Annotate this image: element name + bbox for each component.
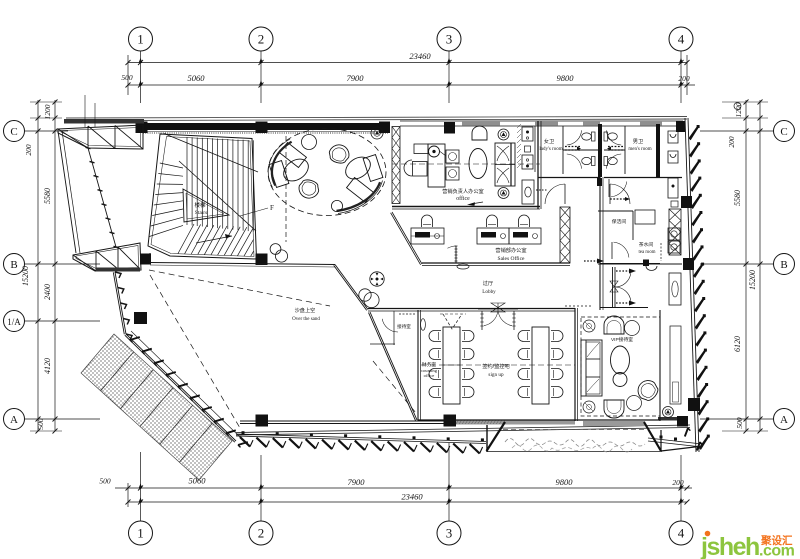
svg-text:F: F (270, 204, 274, 212)
svg-text:茶水间: 茶水间 (639, 241, 654, 248)
svg-text:4: 4 (678, 32, 685, 47)
svg-text:5580: 5580 (733, 190, 742, 206)
svg-text:2: 2 (258, 32, 265, 47)
svg-text:.com: .com (759, 543, 795, 559)
svg-text:Stairs: Stairs (195, 210, 208, 216)
svg-text:3: 3 (446, 526, 453, 541)
svg-text:沙盘上空: 沙盘上空 (295, 306, 316, 314)
svg-text:15200: 15200 (748, 270, 757, 290)
svg-text:签约/监控吧: 签约/监控吧 (482, 362, 510, 370)
svg-text:男卫: 男卫 (633, 138, 643, 145)
svg-text:保洁间: 保洁间 (612, 218, 627, 225)
svg-text:Sales Office: Sales Office (498, 255, 525, 262)
svg-text:2: 2 (258, 526, 265, 541)
svg-text:men's room: men's room (628, 147, 651, 152)
svg-text:3: 3 (446, 32, 453, 47)
svg-text:500: 500 (36, 418, 45, 430)
svg-text:6120: 6120 (733, 336, 742, 352)
svg-text:4120: 4120 (43, 358, 52, 374)
svg-text:9800: 9800 (556, 477, 574, 487)
svg-text:200: 200 (24, 144, 33, 156)
svg-text:7900: 7900 (347, 73, 365, 83)
svg-text:营销负责人办公室: 营销负责人办公室 (442, 187, 484, 195)
svg-text:200: 200 (727, 136, 736, 148)
svg-text:Lobby: Lobby (482, 289, 496, 295)
svg-text:B: B (10, 259, 17, 271)
svg-text:office: office (456, 195, 470, 202)
svg-text:23460: 23460 (409, 51, 431, 61)
svg-text:楼梯: 楼梯 (194, 201, 206, 209)
svg-text:1200: 1200 (43, 104, 52, 119)
svg-text:1/A: 1/A (7, 317, 21, 327)
svg-text:500: 500 (121, 73, 133, 82)
svg-text:接待室: 接待室 (397, 323, 411, 330)
svg-text:A: A (780, 414, 788, 426)
svg-text:200: 200 (672, 478, 684, 487)
svg-text:Over the sand: Over the sand (292, 317, 320, 322)
svg-text:sign up: sign up (488, 372, 504, 378)
svg-text:9800: 9800 (557, 73, 575, 83)
svg-text:500: 500 (99, 477, 111, 486)
svg-text:lady's room: lady's room (539, 147, 562, 152)
svg-text:tea room: tea room (639, 250, 656, 255)
svg-text:jsheh: jsheh (700, 533, 759, 559)
svg-text:7900: 7900 (348, 477, 366, 487)
svg-text:1: 1 (137, 526, 144, 541)
svg-text:过厅: 过厅 (483, 279, 493, 287)
svg-text:B: B (780, 259, 787, 271)
svg-text:VIP接待室: VIP接待室 (611, 336, 633, 343)
svg-text:1200: 1200 (734, 102, 743, 117)
svg-text:5060: 5060 (188, 73, 206, 83)
svg-text:A: A (10, 414, 18, 426)
svg-text:1: 1 (137, 32, 144, 47)
svg-text:15200: 15200 (21, 266, 30, 286)
svg-text:4: 4 (678, 526, 685, 541)
svg-text:23460: 23460 (401, 492, 423, 502)
svg-text:财务室: 财务室 (422, 361, 437, 368)
svg-text:2400: 2400 (43, 284, 52, 300)
svg-text:营销部办公室: 营销部办公室 (495, 246, 526, 254)
svg-text:女卫: 女卫 (544, 137, 554, 145)
svg-text:5580: 5580 (43, 188, 52, 204)
svg-text:200: 200 (678, 74, 690, 83)
svg-text:C: C (780, 126, 787, 138)
svg-text:C: C (10, 126, 17, 138)
